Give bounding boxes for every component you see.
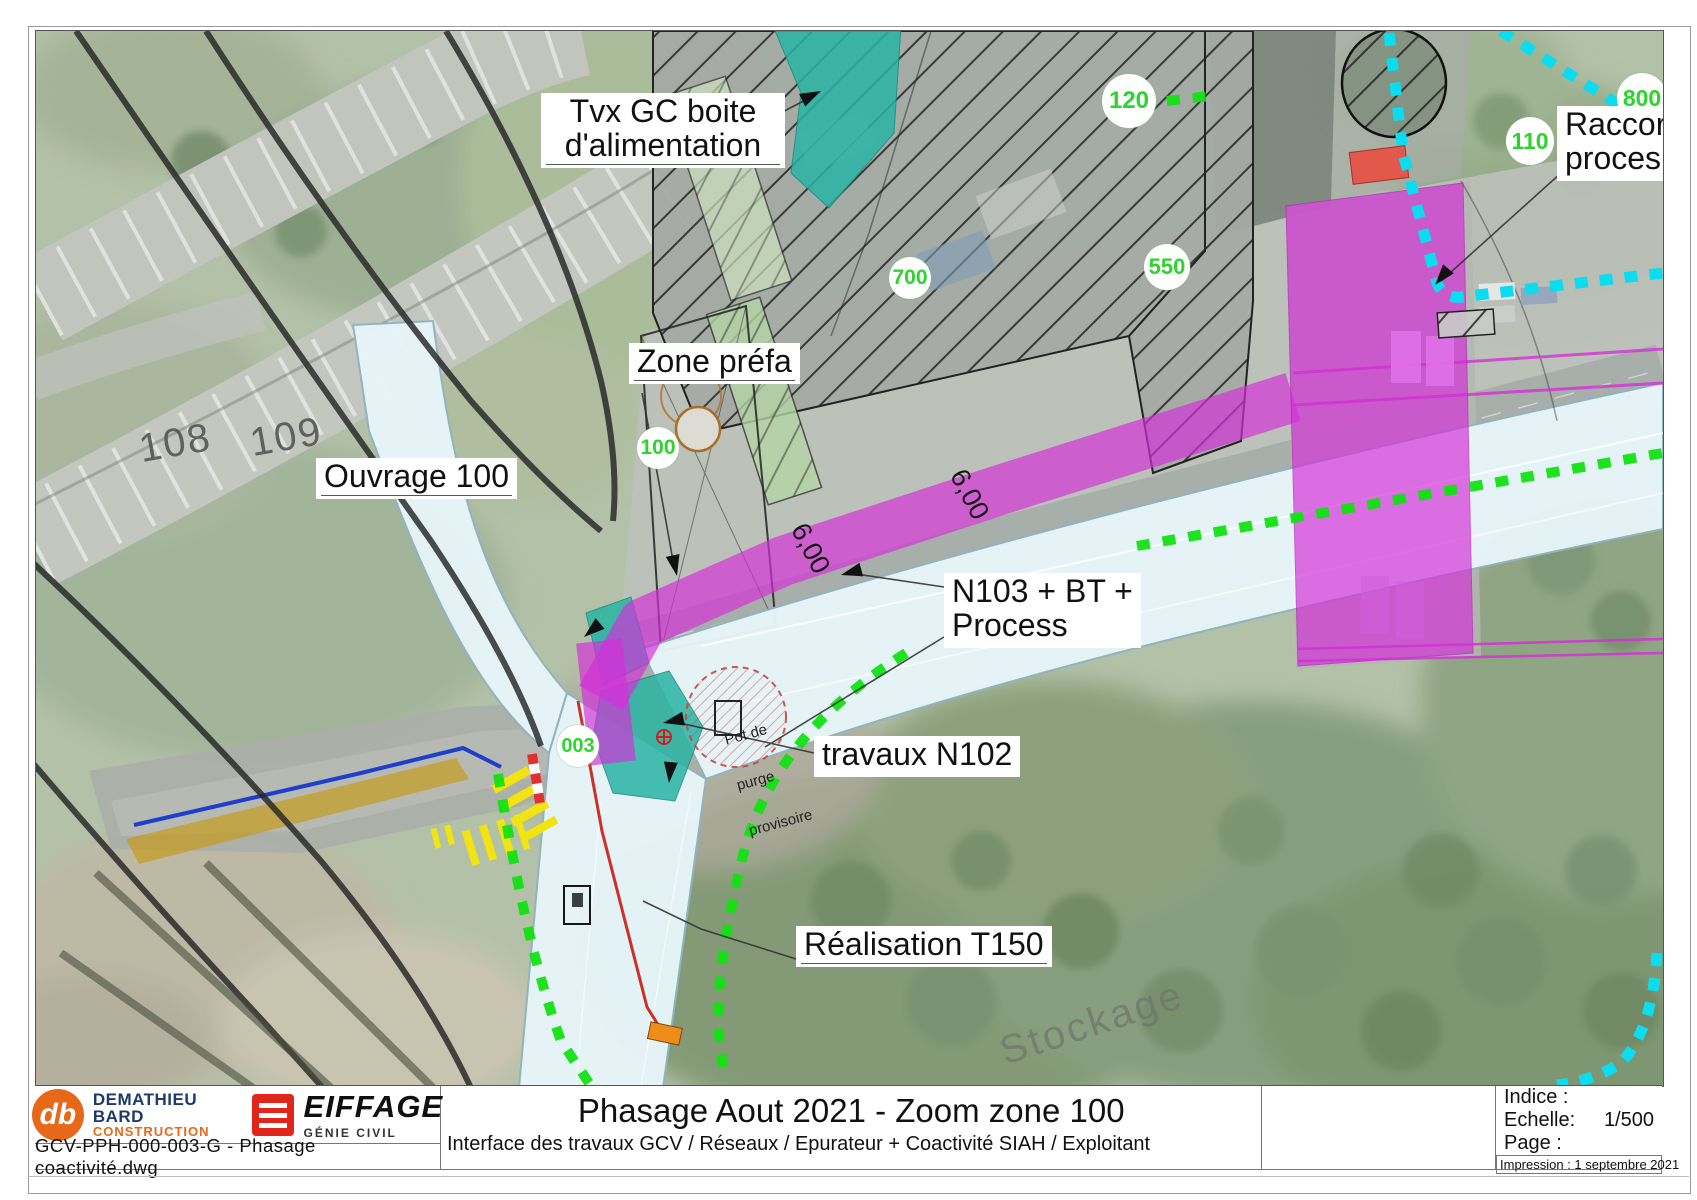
echelle-value: 1/500 (1604, 1109, 1654, 1132)
label-tvx-gc-line1: Tvx GC boite (549, 95, 777, 129)
indice-label: Indice : (1504, 1086, 1568, 1109)
title-block: db DEMATHIEU BARD CONSTRUCTION EIFFAGE G… (35, 1085, 1662, 1170)
eiffage-logo: EIFFAGE GÉNIE CIVIL (252, 1089, 444, 1140)
demathieu-bard-logo: db DEMATHIEU BARD CONSTRUCTION (32, 1089, 210, 1141)
label-ouvrage-100: Ouvrage 100 (316, 458, 517, 499)
title-block-logos-cell: db DEMATHIEU BARD CONSTRUCTION EIFFAGE G… (35, 1086, 441, 1169)
drawing-subtitle: Interface des travaux GCV / Réseaux / Ep… (441, 1130, 1261, 1156)
eiffage-icon (252, 1094, 294, 1136)
db-name1: DEMATHIEU (93, 1091, 210, 1108)
marker-100: 100 (637, 427, 679, 469)
label-n103-line1: N103 + BT + (952, 575, 1133, 609)
plan-page: Tvx GC boite d'alimentation Zone préfa O… (0, 0, 1697, 1200)
label-zone-prefa: Zone préfa (629, 343, 800, 384)
drawing-title: Phasage Aout 2021 - Zoom zone 100 (441, 1092, 1261, 1130)
echelle-label: Echelle: (1504, 1109, 1575, 1132)
map-viewport: Tvx GC boite d'alimentation Zone préfa O… (35, 30, 1664, 1087)
marker-700: 700 (889, 257, 931, 299)
bottom-rule (28, 1176, 1689, 1177)
pot-line1: Pot de (723, 716, 790, 748)
db-name2: BARD (93, 1108, 210, 1125)
label-raccordement-line1: Raccor (1565, 108, 1664, 142)
title-block-info-cell: Indice : Echelle: 1/500 Page : Impressio… (1496, 1086, 1662, 1169)
label-raccordement: Raccor proces (1557, 106, 1664, 181)
impression-date: Impression : 1 septembre 2021 (1496, 1155, 1662, 1174)
title-block-title-cell: Phasage Aout 2021 - Zoom zone 100 Interf… (441, 1086, 1262, 1169)
label-realisation-t150: Réalisation T150 (796, 926, 1052, 967)
label-tvx-gc-line2: d'alimentation (549, 129, 777, 163)
label-raccordement-line2: proces (1565, 142, 1664, 176)
pot-line2: purge (735, 762, 802, 794)
title-block-empty-cell (1262, 1086, 1496, 1169)
pot-line3: provisoire (747, 807, 814, 839)
demathieu-bard-monogram-icon: db (32, 1089, 84, 1141)
red-truck (1349, 146, 1408, 185)
marker-110: 110 (1506, 117, 1554, 165)
stockage-line1: Stockage (994, 971, 1190, 1076)
marker-120: 120 (1102, 74, 1156, 128)
label-n103: N103 + BT + Process (944, 573, 1141, 648)
label-tvx-gc: Tvx GC boite d'alimentation (541, 93, 785, 168)
label-travaux-n102: travaux N102 (814, 736, 1020, 777)
marker-003: 003 (557, 725, 599, 767)
drawing-filename: GCV-PPH-000-003-G - Phasage coactivité.d… (35, 1143, 440, 1169)
page-label: Page : (1504, 1132, 1562, 1155)
eiffage-name: EIFFAGE (304, 1089, 444, 1125)
marker-550: 550 (1144, 244, 1190, 290)
transformer-box (1437, 309, 1495, 338)
label-n103-line2: Process (952, 609, 1133, 643)
